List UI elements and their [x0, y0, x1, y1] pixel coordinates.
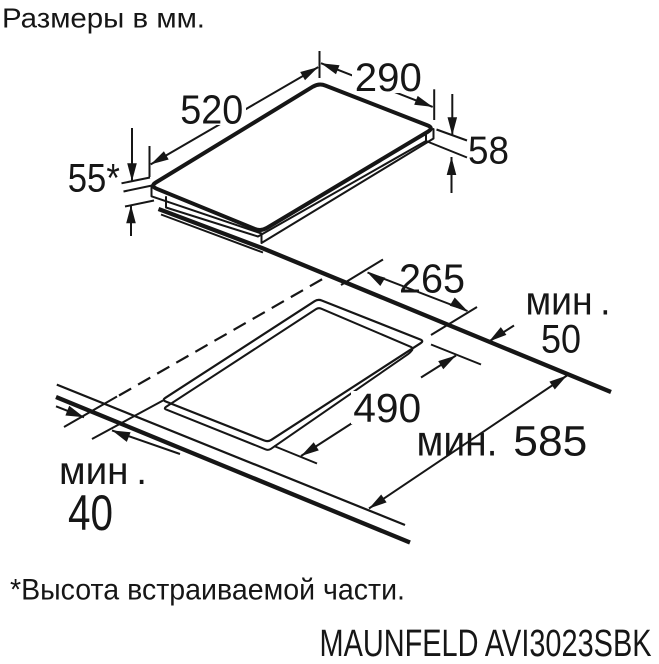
- svg-text:585: 585: [513, 417, 587, 465]
- svg-text:мин.: мин.: [417, 417, 498, 465]
- svg-text:290: 290: [355, 56, 422, 100]
- svg-text:Размеры в мм.: Размеры в мм.: [2, 3, 205, 34]
- svg-text:40: 40: [68, 484, 113, 541]
- svg-text:520: 520: [180, 86, 243, 132]
- svg-text:MAUNFELD AVI3023SBK: MAUNFELD AVI3023SBK: [320, 623, 652, 664]
- svg-text:*Высота встраиваемой части.: *Высота встраиваемой части.: [10, 574, 405, 607]
- svg-text:490: 490: [353, 385, 421, 431]
- svg-text:265: 265: [399, 256, 465, 302]
- svg-text:50: 50: [541, 318, 581, 362]
- svg-text:55*: 55*: [68, 157, 120, 201]
- svg-text:58: 58: [468, 129, 509, 172]
